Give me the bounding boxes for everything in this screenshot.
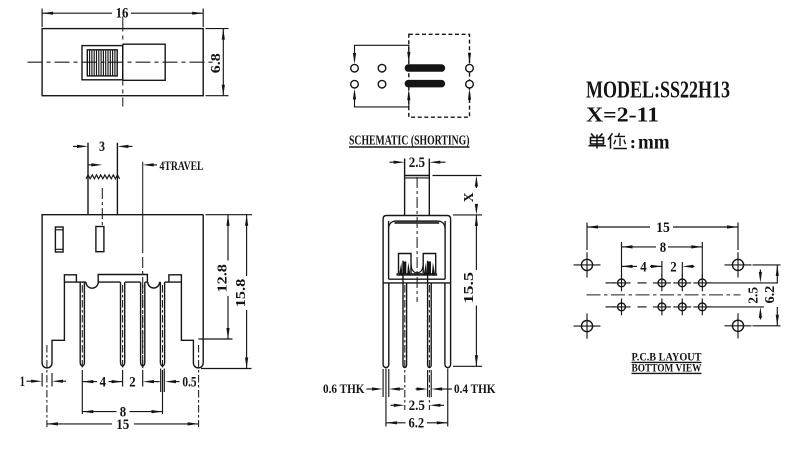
svg-text:2.5: 2.5 <box>746 287 761 304</box>
svg-text:12.8: 12.8 <box>216 264 231 293</box>
svg-text:15.5: 15.5 <box>462 272 477 304</box>
svg-text:0.4 THK: 0.4 THK <box>454 382 496 396</box>
svg-text:X=2-11: X=2-11 <box>586 103 659 127</box>
svg-text:15: 15 <box>656 220 670 236</box>
svg-text:1: 1 <box>20 374 25 390</box>
svg-text:6.8: 6.8 <box>209 53 224 73</box>
svg-text:15: 15 <box>116 417 129 433</box>
svg-text:0.6 THK: 0.6 THK <box>323 382 365 396</box>
svg-text:3: 3 <box>99 139 105 155</box>
svg-text:SCHEMATIC (SHORTING): SCHEMATIC (SHORTING) <box>349 133 470 148</box>
svg-text:0.5: 0.5 <box>182 374 196 390</box>
svg-text:6.2: 6.2 <box>409 416 425 432</box>
svg-text:2.5: 2.5 <box>409 155 425 171</box>
svg-text:2.5: 2.5 <box>409 398 425 414</box>
svg-text:4TRAVEL: 4TRAVEL <box>160 159 204 173</box>
svg-text:X: X <box>462 192 477 202</box>
svg-text:mm: mm <box>638 129 670 153</box>
svg-text:4: 4 <box>100 374 107 390</box>
svg-text:8: 8 <box>660 240 666 256</box>
svg-text:2: 2 <box>129 374 135 390</box>
svg-text:2: 2 <box>670 259 676 275</box>
svg-text:15.8: 15.8 <box>234 279 249 308</box>
svg-text:BOTTOM VIEW: BOTTOM VIEW <box>632 361 702 375</box>
svg-text:4: 4 <box>640 259 647 275</box>
svg-text:MODEL:SS22H13: MODEL:SS22H13 <box>586 78 730 104</box>
svg-text:6.2: 6.2 <box>763 286 778 304</box>
svg-text:16: 16 <box>116 6 129 22</box>
